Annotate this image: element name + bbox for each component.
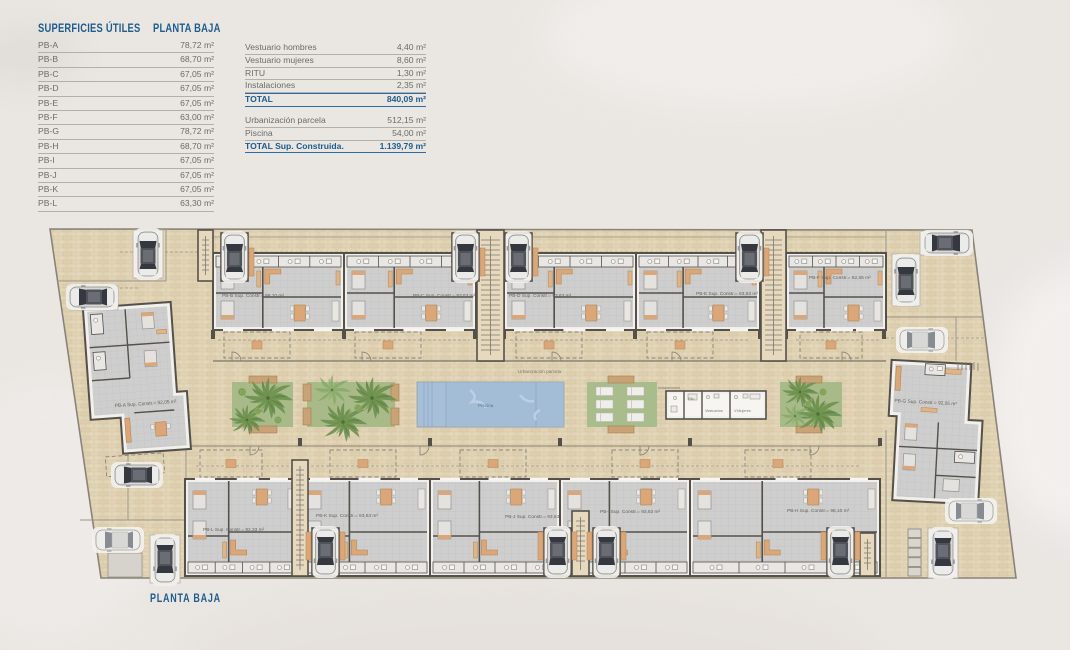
svg-text:PB-B Sup. Constr.= 98,10 m²: PB-B Sup. Constr.= 98,10 m² xyxy=(222,293,284,299)
svg-text:V.Mujeres: V.Mujeres xyxy=(734,409,751,413)
svg-text:PB-L Sup. Constr.= 82,33 m²: PB-L Sup. Constr.= 82,33 m² xyxy=(203,527,265,533)
svg-text:PB-I Sup. Constr.= 93,63 m²: PB-I Sup. Constr.= 93,63 m² xyxy=(600,509,661,515)
svg-text:PB-J Sup. Constr.= 93,63 m²: PB-J Sup. Constr.= 93,63 m² xyxy=(505,514,567,520)
svg-text:Piscina: Piscina xyxy=(478,403,494,409)
svg-text:PB-K Sup. Constr.= 93,63 m²: PB-K Sup. Constr.= 93,63 m² xyxy=(316,513,378,519)
svg-text:PB-E Sup. Constr.= 93,63 m²: PB-E Sup. Constr.= 93,63 m² xyxy=(696,291,758,297)
svg-text:Instalaciones: Instalaciones xyxy=(658,386,680,390)
svg-text:PB-D Sup. Constr.= 93,63 m²: PB-D Sup. Constr.= 93,63 m² xyxy=(509,293,572,299)
svg-text:Ritu: Ritu xyxy=(688,397,694,401)
svg-text:Vestuarios: Vestuarios xyxy=(705,409,723,413)
svg-text:PB-C Sup. Constr.= 93,63 m²: PB-C Sup. Constr.= 93,63 m² xyxy=(413,293,476,299)
svg-text:PB-F Sup. Constr.= 82,55 m²: PB-F Sup. Constr.= 82,55 m² xyxy=(809,275,871,281)
svg-text:PB-H Sup. Constr.= 98,10 m²: PB-H Sup. Constr.= 98,10 m² xyxy=(787,508,850,514)
svg-text:Urbanización parcela: Urbanización parcela xyxy=(518,369,562,374)
